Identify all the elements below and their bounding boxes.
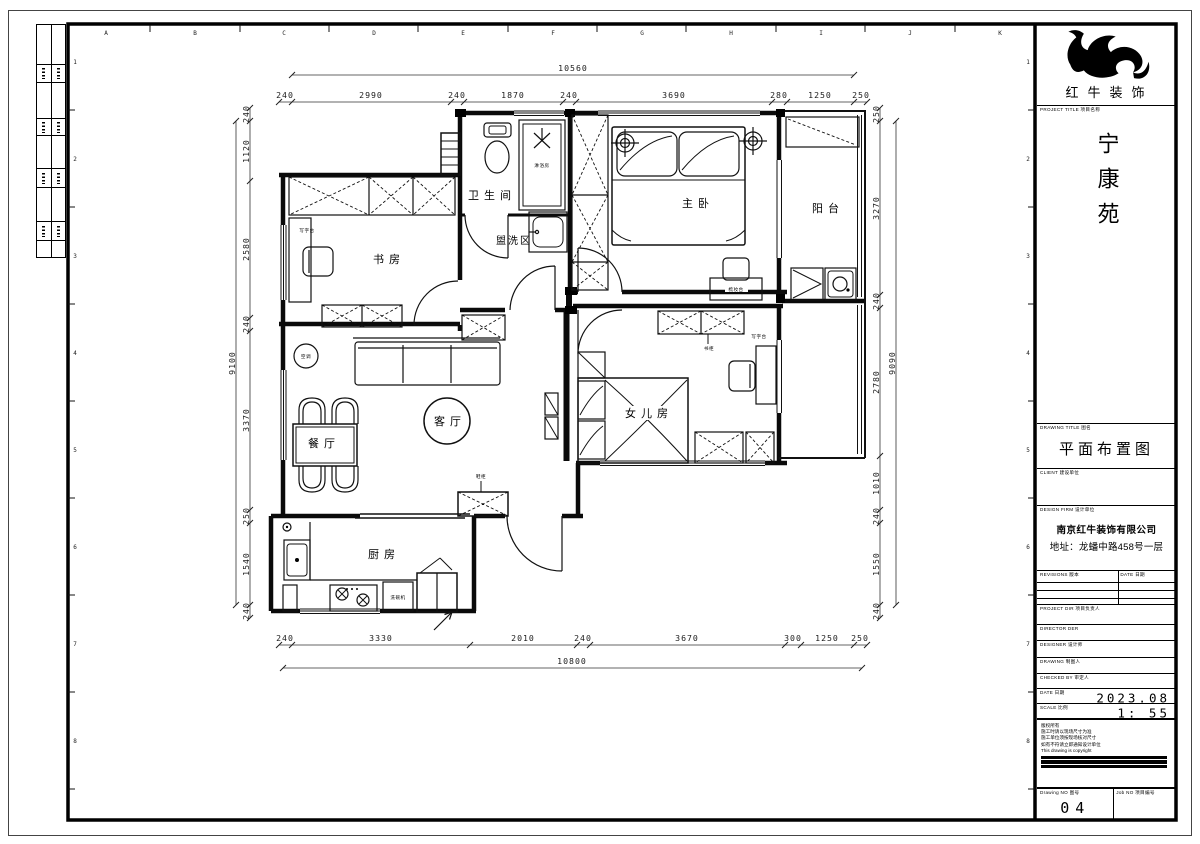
room-label-master: 主卧 [682, 197, 714, 210]
edge-table-row [37, 118, 65, 136]
dim-value: 240 [871, 507, 881, 525]
daughter-furniture [578, 311, 776, 463]
bull-logo-icon [1059, 26, 1155, 82]
drawing-no-label: Drawing NO 图号 [1040, 790, 1079, 796]
shoe-cabinet [458, 481, 508, 516]
dim-value: 3370 [241, 408, 251, 432]
project-dir-row: PROJECT DIR 项目负责人 [1037, 604, 1176, 624]
director-label: DIRECTOR DER [1040, 626, 1078, 631]
dim-value: 10800 [557, 656, 587, 666]
room-label-shower: 淋浴房 [534, 162, 549, 169]
dim-value: 240 [241, 602, 251, 620]
ruler-letter: K [998, 30, 1002, 37]
edge-table-mark [57, 68, 60, 79]
dim-value: 3670 [675, 633, 699, 643]
wash-area-furniture [529, 212, 567, 252]
dim-value: 240 [871, 292, 881, 310]
date-row: DATE 日期 2023.08 [1037, 688, 1176, 703]
dimensions-bottom: 240 3330 2010 240 3670 300 1250 250 1080… [276, 633, 870, 671]
dimensions-top: 10560 240 2990 240 1870 240 3690 280 125… [276, 63, 870, 105]
date-column-label: DATE 日期 [1120, 572, 1144, 578]
dim-value: 1250 [815, 633, 839, 643]
design-firm-section: DESIGN FIRM 设计单位 南京红牛装饰有限公司 地址：龙蟠中路458号一… [1037, 505, 1176, 570]
room-label-wash-area: 盥洗区 [496, 235, 532, 247]
ruler-letter: B [193, 30, 197, 37]
room-label-bathroom: 卫生间 [468, 188, 516, 202]
dimensions-right: 250 3270 240 2780 1010 240 1550 240 9090 [871, 105, 899, 621]
project-dir-label: PROJECT DIR 项目负责人 [1040, 606, 1100, 612]
copyright-line: This drawing is copyright [1041, 748, 1172, 754]
ruler-number: 6 [73, 544, 77, 551]
edge-table-mark [42, 68, 45, 79]
edge-table-mark [42, 173, 45, 184]
room-label-dining: 餐厅 [308, 436, 340, 450]
ruler-number: 8 [73, 738, 77, 745]
ruler-number: 5 [73, 447, 77, 454]
ceiling-lamp-icon [739, 127, 767, 155]
design-firm-label: DESIGN FIRM 设计单位 [1040, 507, 1095, 513]
ruler-number: 4 [1026, 350, 1030, 357]
edge-table-mark [42, 226, 45, 237]
kitchen-furniture [283, 522, 457, 612]
client-label: CLIENT 建设单位 [1040, 470, 1079, 476]
study-furniture [289, 177, 455, 327]
edge-table-row [37, 64, 65, 83]
dim-value: 3330 [369, 633, 393, 643]
dim-value: 3270 [871, 196, 881, 220]
brand-name: 红牛装饰 [1037, 82, 1176, 106]
dim-value: 250 [871, 105, 881, 123]
dim-value: 10560 [558, 63, 588, 73]
edge-table-mark [57, 173, 60, 184]
edge-reference-table [36, 24, 66, 258]
ruler-number: 3 [73, 253, 77, 260]
designer-label: DESIGNER 设计师 [1040, 642, 1083, 648]
checked-label: CHECKED BY 审定人 [1040, 675, 1089, 681]
ruler-number: 5 [1026, 447, 1030, 454]
edge-table-row [37, 221, 65, 241]
dim-value: 240 [276, 90, 294, 100]
edge-table-mark [42, 122, 45, 133]
ruler-number: 7 [1026, 641, 1030, 648]
label-desk-study: 写字台 [299, 227, 314, 234]
checked-row: CHECKED BY 审定人 [1037, 673, 1176, 688]
dim-value: 250 [852, 90, 870, 100]
dimensions-left: 240 1120 2580 240 3370 250 1540 240 9100 [227, 105, 253, 621]
dim-value: 2580 [241, 237, 251, 261]
title-block: 红牛装饰 PROJECT TITLE 项目名称 宁康苑 DRAWING TITL… [1037, 26, 1176, 820]
pipe-shaft [441, 133, 460, 175]
ceiling-lamp-icon [611, 129, 639, 157]
edge-table-row [37, 168, 65, 188]
dim-value: 300 [784, 633, 802, 643]
ruler-letter: J [908, 30, 912, 37]
room-labels: 卫生间 淋浴房 盥洗区 主卧 阳台 书房 客厅 餐厅 女儿房 厨房 [302, 162, 844, 561]
label-dresser: 梳妆台 [728, 286, 743, 293]
client-section: CLIENT 建设单位 [1037, 468, 1176, 505]
company-logo [1037, 26, 1176, 82]
dim-value: 250 [241, 507, 251, 525]
drawing-title-label: DRAWING TITLE 图名 [1040, 425, 1091, 431]
ruler-number: 3 [1026, 253, 1030, 260]
edge-table-mark [57, 122, 60, 133]
ruler-letter: A [104, 30, 108, 37]
room-label-daughter: 女儿房 [625, 406, 673, 420]
furniture-labels: 写字台 空调 鞋柜 书柜 写字台 洗碗机 梳妆台 [299, 227, 766, 601]
page: { "rulers": { "letters": ["A","B","C","D… [0, 0, 1200, 844]
drawing-frame [9, 11, 1192, 836]
ruler-number: 6 [1026, 544, 1030, 551]
ruler-letter: H [729, 30, 733, 37]
drawing-no-value: 04 [1037, 799, 1113, 817]
master-furniture [572, 115, 767, 300]
ruler-letter: E [461, 30, 465, 37]
label-shoe-cabinet: 鞋柜 [476, 473, 486, 480]
dim-value: 240 [448, 90, 466, 100]
dim-value: 240 [241, 105, 251, 123]
drawing-number-section: Drawing NO 图号 Job NO 项目编号 04 [1037, 787, 1176, 820]
room-label-study: 书房 [373, 253, 405, 266]
dim-value: 2780 [871, 370, 881, 394]
dim-value: 250 [851, 633, 869, 643]
scale-label: SCALE 比例 [1040, 705, 1068, 711]
scale-row: SCALE 比例 1: 55 [1037, 703, 1176, 718]
label-dishwasher: 洗碗机 [390, 594, 405, 601]
ruler-top: A B C D E F G H I J K [104, 25, 1002, 37]
label-bookcase: 书柜 [704, 345, 714, 352]
dim-value: 240 [241, 315, 251, 333]
dim-value: 2010 [511, 633, 535, 643]
edge-table-mark [57, 226, 60, 237]
project-title-section: PROJECT TITLE 项目名称 宁康苑 [1037, 106, 1176, 423]
drawing-title-section: DRAWING TITLE 图名 平面布置图 [1037, 423, 1176, 468]
room-label-balcony: 阳台 [812, 201, 844, 215]
dim-value: 1120 [241, 139, 251, 163]
dim-value: 240 [871, 602, 881, 620]
project-title-label: PROJECT TITLE 项目名称 [1040, 107, 1100, 113]
design-firm-address: 地址：龙蟠中路458号一层 [1037, 539, 1176, 553]
ruler-number: 4 [73, 350, 77, 357]
ruler-number: 2 [1026, 156, 1030, 163]
floorplan-svg: A B C D E F G H I J K 1 2 3 4 5 6 7 8 1 … [0, 0, 1200, 844]
revisions-label: REVISIONS 版本 [1040, 572, 1079, 578]
ruler-letter: F [551, 30, 555, 37]
ruler-letter: G [640, 30, 644, 37]
designer-row: DESIGNER 设计师 [1037, 640, 1176, 657]
ruler-number: 1 [73, 59, 77, 66]
ruler-number: 2 [73, 156, 77, 163]
drawing-row: DRAWING 制图人 [1037, 657, 1176, 673]
drawing-label: DRAWING 制图人 [1040, 659, 1080, 665]
ruler-letter: D [372, 30, 376, 37]
dim-value: 1010 [871, 471, 881, 495]
date-label: DATE 日期 [1040, 690, 1064, 696]
dim-value: 1550 [871, 552, 881, 576]
redacted-text-line [1041, 756, 1167, 759]
dim-value: 280 [770, 90, 788, 100]
project-name: 宁康苑 [1091, 132, 1123, 237]
ruler-number: 8 [1026, 738, 1030, 745]
ruler-number: 7 [73, 641, 77, 648]
dim-value: 9090 [887, 351, 897, 375]
dim-value: 9100 [227, 351, 237, 375]
redacted-text-line [1041, 760, 1167, 763]
revisions-section: REVISIONS 版本 DATE 日期 [1037, 570, 1176, 604]
dim-value: 1870 [501, 90, 525, 100]
dim-value: 240 [276, 633, 294, 643]
job-no-label: Job NO 项目编号 [1116, 790, 1155, 796]
redacted-text-line [1041, 765, 1167, 768]
label-desk-daughter: 写字台 [751, 333, 766, 340]
dim-value: 240 [574, 633, 592, 643]
design-firm-name: 南京红牛装饰有限公司 [1037, 522, 1176, 536]
director-row: DIRECTOR DER [1037, 624, 1176, 640]
dim-value: 1250 [808, 90, 832, 100]
label-ac: 空调 [301, 353, 311, 360]
drawing-title: 平面布置图 [1037, 438, 1176, 459]
dim-value: 240 [560, 90, 578, 100]
fridge [417, 558, 457, 612]
copyright-section: 版权所有 施工时请以现场尺寸为准 施工单位须按现场核对尺寸 如有不符请立即通知设… [1037, 718, 1176, 787]
room-label-kitchen: 厨房 [368, 548, 400, 561]
hall-cabinets [462, 315, 558, 439]
ruler-number: 1 [1026, 59, 1030, 66]
room-label-living: 客厅 [434, 414, 466, 428]
dim-value: 1540 [241, 552, 251, 576]
dim-value: 2990 [359, 90, 383, 100]
dim-value: 3690 [662, 90, 686, 100]
ruler-letter: C [282, 30, 286, 37]
ruler-letter: I [819, 30, 823, 37]
